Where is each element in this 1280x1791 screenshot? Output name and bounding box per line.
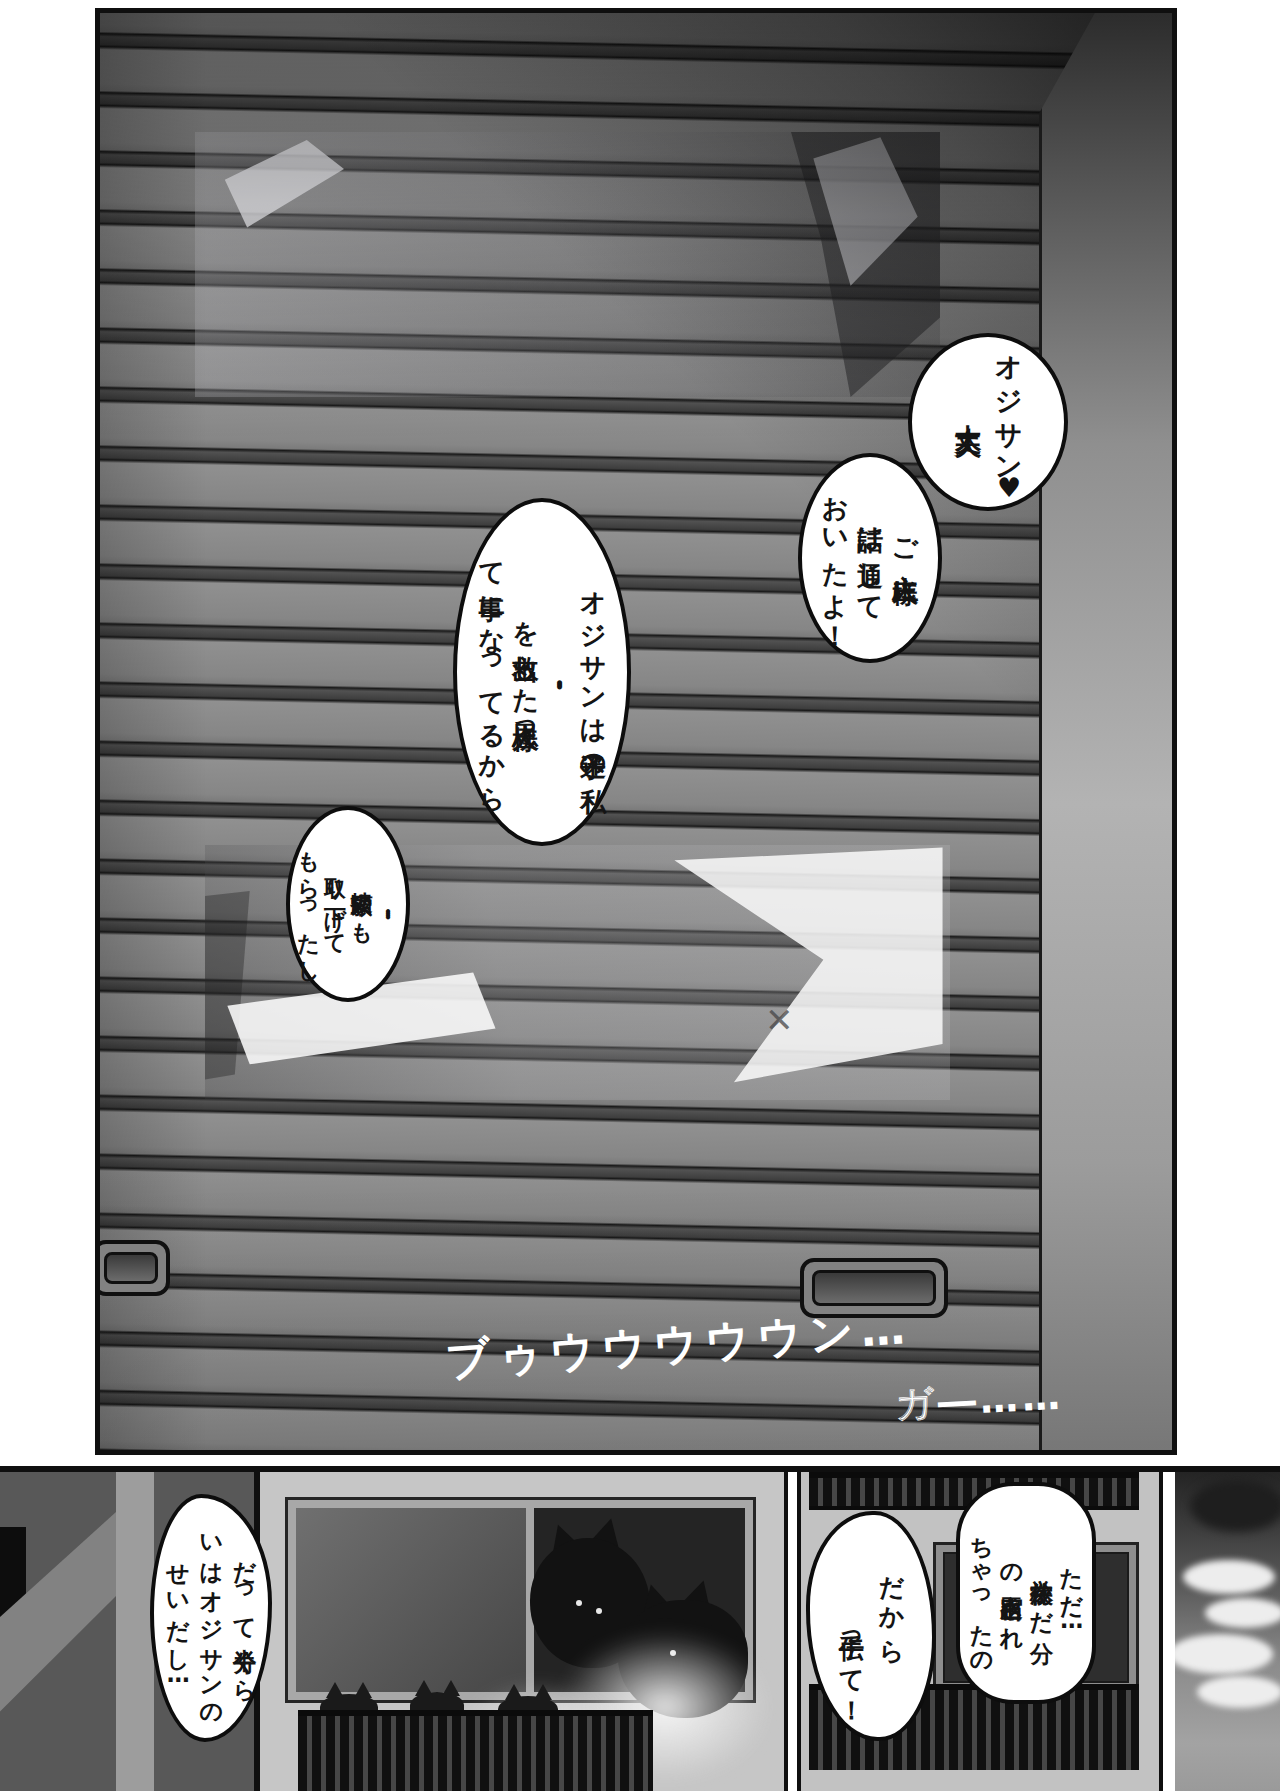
speech-bubble: だって半分くら いはオジサンの せいだし… bbox=[150, 1494, 272, 1742]
speech-bubble: ただ… 学校休んだ分 の宿題出され ちゃったの bbox=[956, 1482, 1096, 1704]
sfx-gaa: ガ―…… bbox=[894, 1371, 1065, 1431]
bubble-text: ・・・・ 捜索願いも 取り下げて もらったし bbox=[295, 836, 401, 972]
cat-ear bbox=[415, 1680, 433, 1696]
creature-eye bbox=[596, 1608, 602, 1614]
cloud bbox=[1175, 1634, 1273, 1674]
window-pane bbox=[296, 1508, 526, 1692]
panel-evening-sky bbox=[1175, 1472, 1280, 1791]
speech-bubble: ご主人様に 話は通して おいたよ！ bbox=[798, 453, 942, 663]
bottom-panel-strip: だって半分くら いはオジサンの せいだし… だから 手伝って！ ただ… 学校休ん… bbox=[0, 1466, 1280, 1791]
door-jamb bbox=[1039, 13, 1172, 1450]
speech-bubble: ・・・・ 捜索願いも 取り下げて もらったし bbox=[286, 806, 410, 1002]
cloud bbox=[1183, 1560, 1275, 1594]
cat-ear bbox=[326, 1682, 344, 1698]
dark-cloud bbox=[1190, 1480, 1280, 1532]
bubble-text: オジサンは迷子の私 ・・・ を救出した恩人様っ て事になってるから bbox=[474, 544, 609, 800]
speech-bubble: オジサンは迷子の私 ・・・ を救出した恩人様っ て事になってるから bbox=[453, 498, 631, 846]
cloud bbox=[1197, 1676, 1280, 1708]
cloud bbox=[1205, 1598, 1280, 1628]
speech-bubble: オジサン♥ 大丈夫！ bbox=[908, 333, 1068, 511]
bubble-text: だって半分くら いはオジサンの せいだし… bbox=[161, 1519, 261, 1717]
handle-recess bbox=[104, 1252, 158, 1284]
bubble-text: オジサン♥ 大丈夫！ bbox=[948, 337, 1029, 506]
panel-garage-shutter: ✕ オジサン♥ 大丈夫！ ご主人様に 話は通して おいたよ！ オジサンは迷子の私… bbox=[95, 8, 1177, 1455]
cat-ear bbox=[442, 1680, 460, 1696]
cat-ear bbox=[534, 1684, 552, 1700]
bubble-text: だから 手伝って！ bbox=[831, 1540, 911, 1712]
cat-ear bbox=[505, 1684, 523, 1700]
manga-page: ✕ オジサン♥ 大丈夫！ ご主人様に 話は通して おいたよ！ オジサンは迷子の私… bbox=[0, 0, 1280, 1791]
shutter-handle-left bbox=[95, 1240, 170, 1296]
cat-ear bbox=[354, 1682, 372, 1698]
balcony-railing bbox=[298, 1710, 653, 1791]
bubble-text: ただ… 学校休んだ分 の宿題出され ちゃったの bbox=[966, 1522, 1086, 1664]
bubble-text: ご主人様に 話は通して おいたよ！ bbox=[817, 478, 922, 638]
shutter-slats bbox=[100, 13, 1172, 1450]
panel-balcony-creature bbox=[260, 1472, 788, 1791]
wall-corner-strip bbox=[116, 1472, 154, 1791]
creature-eye bbox=[576, 1600, 582, 1606]
